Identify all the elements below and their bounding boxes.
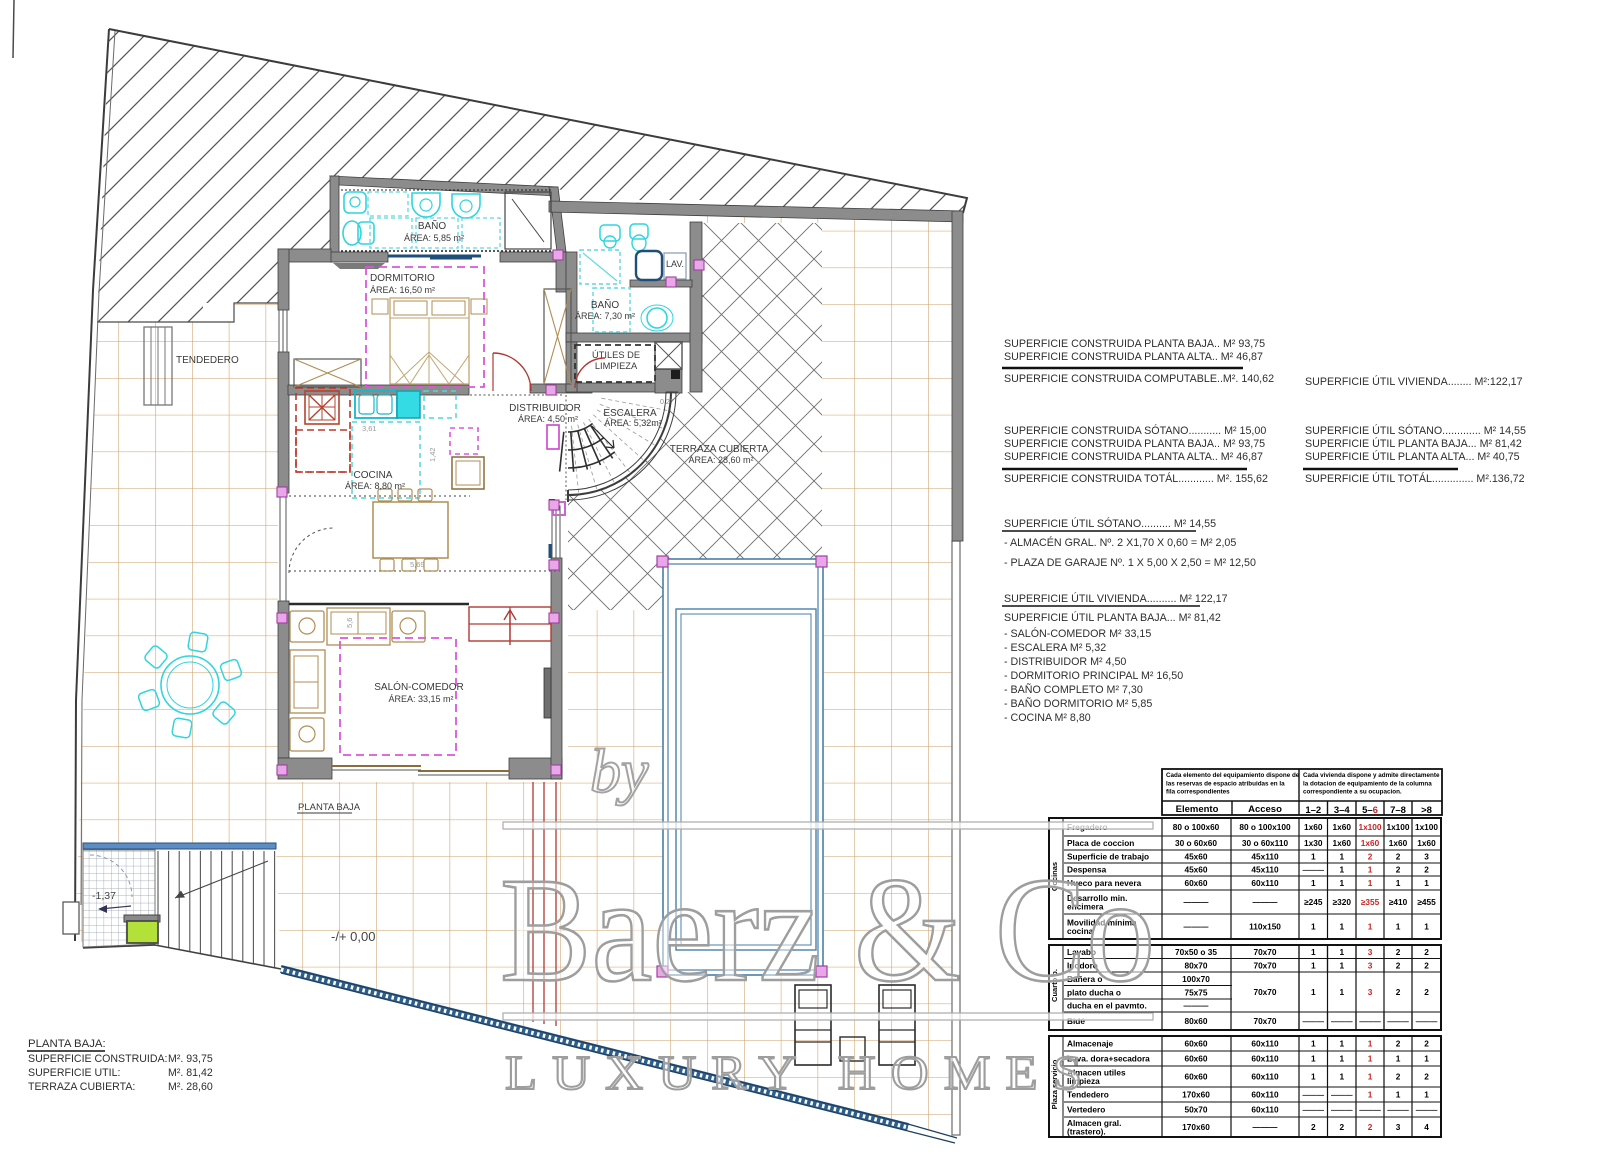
svg-text:1x60: 1x60 (1361, 838, 1380, 848)
svg-text:80x60: 80x60 (1184, 1016, 1207, 1026)
svg-text:by: by (590, 738, 649, 806)
svg-text:70x50 o 35: 70x50 o 35 (1175, 947, 1217, 957)
svg-text:ÁREA: 16,50 m²: ÁREA: 16,50 m² (370, 285, 435, 295)
svg-text:1: 1 (1368, 878, 1373, 888)
svg-text:- BAÑO DORMITORIO M² 5,85: - BAÑO DORMITORIO M² 5,85 (1004, 697, 1152, 710)
svg-text:1: 1 (1339, 1054, 1344, 1064)
svg-text:30 o 60x110: 30 o 60x110 (1242, 838, 1289, 848)
svg-text:3: 3 (1424, 852, 1429, 862)
svg-text:1,42: 1,42 (428, 447, 437, 462)
svg-text:———: ——— (1359, 1017, 1381, 1026)
svg-text:———: ——— (1331, 1106, 1353, 1115)
svg-text:1: 1 (1368, 1039, 1373, 1049)
svg-text:———: ——— (1387, 1106, 1409, 1115)
svg-text:SUPERFICIE ÚTIL PLANTA BAJA...: SUPERFICIE ÚTIL PLANTA BAJA... M² 81,42 (1004, 611, 1221, 624)
svg-text:———: ——— (1359, 1106, 1381, 1115)
svg-text:-/+ 0,00: -/+ 0,00 (331, 929, 375, 944)
svg-text:1x100: 1x100 (1415, 822, 1438, 832)
svg-text:———: ——— (1416, 1017, 1438, 1026)
svg-text:0,27: 0,27 (660, 399, 674, 406)
svg-text:1–2: 1–2 (1305, 805, 1321, 816)
svg-text:SUPERFICIE CONSTRUIDA:: SUPERFICIE CONSTRUIDA: (28, 1053, 168, 1065)
svg-text:60x60: 60x60 (1184, 878, 1207, 888)
svg-text:———: ——— (1184, 1001, 1210, 1011)
svg-text:2: 2 (1396, 960, 1401, 970)
svg-text:1x60: 1x60 (1389, 838, 1408, 848)
svg-text:- SALÓN-COMEDOR M² 33,15: - SALÓN-COMEDOR M² 33,15 (1004, 627, 1151, 640)
svg-text:DORMITORIO: DORMITORIO (370, 273, 435, 284)
svg-text:30 o 60x60: 30 o 60x60 (1175, 838, 1217, 848)
svg-text:- ALMACÉN GRAL. Nº. 2 X1,70 X: - ALMACÉN GRAL. Nº. 2 X1,70 X 0,60 = M² … (1004, 536, 1236, 549)
svg-text:ÁREA: 28,60 m²: ÁREA: 28,60 m² (688, 455, 753, 465)
svg-text:SUPERFICIE ÚTIL VIVIENDA......: SUPERFICIE ÚTIL VIVIENDA.......... M² 12… (1004, 592, 1228, 605)
svg-text:≥245: ≥245 (1304, 897, 1323, 907)
svg-text:1: 1 (1311, 960, 1316, 970)
svg-text:5,6: 5,6 (345, 618, 354, 628)
svg-text:LAV.: LAV. (666, 259, 684, 269)
svg-text:ÁREA: 7,30 m²: ÁREA: 7,30 m² (575, 311, 635, 321)
svg-text:2: 2 (1424, 1039, 1429, 1049)
svg-text:1: 1 (1368, 922, 1373, 932)
svg-text:100x70: 100x70 (1182, 974, 1210, 984)
svg-text:3,61: 3,61 (362, 424, 377, 433)
svg-text:SUPERFICIE CONSTRUIDA PLANTA B: SUPERFICIE CONSTRUIDA PLANTA BAJA.. M² 9… (1004, 338, 1265, 350)
svg-text:SUPERFICIE CONSTRUIDA PLANTA B: SUPERFICIE CONSTRUIDA PLANTA BAJA.. M² 9… (1004, 438, 1265, 450)
svg-text:2: 2 (1424, 987, 1429, 997)
svg-text:3: 3 (1368, 960, 1373, 970)
svg-text:1: 1 (1339, 1072, 1344, 1082)
svg-text:LIMPIEZA: LIMPIEZA (595, 361, 638, 371)
svg-text:ÚTILES DE: ÚTILES DE (592, 350, 640, 360)
svg-text:1: 1 (1339, 1039, 1344, 1049)
svg-text:1: 1 (1311, 947, 1316, 957)
svg-text:2: 2 (1368, 852, 1373, 862)
svg-text:SUPERFICIE CONSTRUIDA SÓTANO..: SUPERFICIE CONSTRUIDA SÓTANO........... … (1004, 424, 1266, 437)
svg-text:SUPERFICIE ÚTIL PLANTA BAJA...: SUPERFICIE ÚTIL PLANTA BAJA... M² 81,42 (1305, 437, 1522, 450)
svg-text:M². 28,60: M². 28,60 (168, 1081, 213, 1093)
svg-text:BAÑO: BAÑO (418, 219, 447, 232)
svg-text:1: 1 (1311, 1039, 1316, 1049)
svg-text:60x110: 60x110 (1251, 1090, 1279, 1100)
svg-text:COCINA: COCINA (354, 470, 393, 481)
svg-text:45x60: 45x60 (1184, 852, 1207, 862)
svg-text:2: 2 (1339, 1122, 1344, 1132)
svg-text:1x60: 1x60 (1304, 822, 1323, 832)
svg-text:1: 1 (1424, 1054, 1429, 1064)
svg-text:1: 1 (1396, 1090, 1401, 1100)
svg-text:60x110: 60x110 (1251, 1054, 1279, 1064)
svg-text:- COCINA M² 8,80: - COCINA M² 8,80 (1004, 712, 1091, 724)
svg-text:1: 1 (1424, 1090, 1429, 1100)
svg-text:1: 1 (1311, 1072, 1316, 1082)
svg-text:Cada elemento del equipamiento: Cada elemento del equipamiento dispone d… (1166, 772, 1300, 779)
svg-text:Cada vivienda dispone y admite: Cada vivienda dispone y admite directame… (1303, 772, 1440, 779)
svg-text:80x70: 80x70 (1184, 960, 1207, 970)
svg-text:70x70: 70x70 (1253, 960, 1276, 970)
svg-text:170x60: 170x60 (1182, 1122, 1210, 1132)
svg-text:- BAÑO COMPLETO M² 7,30: - BAÑO COMPLETO M² 7,30 (1004, 683, 1143, 696)
svg-text:SUPERFICIE ÚTIL SÓTANO........: SUPERFICIE ÚTIL SÓTANO.......... M² 14,5… (1004, 517, 1216, 530)
svg-text:1x100: 1x100 (1386, 822, 1409, 832)
svg-text:45x110: 45x110 (1251, 865, 1279, 875)
svg-text:1: 1 (1339, 878, 1344, 888)
svg-text:———: ——— (1302, 1106, 1324, 1115)
svg-text:SUPERFICIE CONSTRUIDA PLANTA A: SUPERFICIE CONSTRUIDA PLANTA ALTA.. M² 4… (1004, 351, 1263, 363)
svg-text:1: 1 (1311, 987, 1316, 997)
svg-text:TENDEDERO: TENDEDERO (176, 355, 239, 366)
svg-text:1: 1 (1339, 987, 1344, 997)
svg-text:———: ——— (1253, 1122, 1279, 1132)
svg-text:SUPERFICIE CONSTRUIDA TOTÁL...: SUPERFICIE CONSTRUIDA TOTÁL............ … (1004, 472, 1268, 485)
svg-text:70x70: 70x70 (1253, 947, 1276, 957)
svg-text:2: 2 (1424, 947, 1429, 957)
svg-text:1: 1 (1339, 865, 1344, 875)
svg-text:SUPERFICIE ÚTIL TOTÁL.........: SUPERFICIE ÚTIL TOTÁL.............. M².1… (1305, 472, 1525, 485)
svg-text:Acceso: Acceso (1248, 804, 1282, 815)
svg-text:70x70: 70x70 (1253, 987, 1276, 997)
svg-text:ÁREA: 33,15 m²: ÁREA: 33,15 m² (388, 694, 453, 704)
svg-text:SUPERFICIE ÚTIL PLANTA ALTA...: SUPERFICIE ÚTIL PLANTA ALTA... M² 40,75 (1305, 450, 1520, 463)
svg-text:1x100: 1x100 (1358, 822, 1381, 832)
svg-text:———: ——— (1302, 1017, 1324, 1026)
svg-text:60x110: 60x110 (1251, 1039, 1279, 1049)
svg-text:7–8: 7–8 (1390, 805, 1406, 816)
svg-text:1: 1 (1368, 865, 1373, 875)
svg-text:1: 1 (1339, 922, 1344, 932)
svg-text:≥320: ≥320 (1333, 897, 1352, 907)
svg-text:2: 2 (1396, 947, 1401, 957)
svg-text:ÁREA: 4,50 m²: ÁREA: 4,50 m² (518, 414, 578, 424)
svg-text:1: 1 (1311, 1054, 1316, 1064)
svg-text:1: 1 (1311, 852, 1316, 862)
svg-text:1: 1 (1424, 922, 1429, 932)
svg-text:3: 3 (1368, 987, 1373, 997)
svg-text:1: 1 (1396, 878, 1401, 888)
svg-text:SUPERFICIE CONSTRUIDA COMPUTAB: SUPERFICIE CONSTRUIDA COMPUTABLE..M². 14… (1004, 373, 1274, 385)
svg-text:1: 1 (1311, 922, 1316, 932)
svg-text:PLANTA BAJA: PLANTA BAJA (298, 802, 361, 813)
svg-text:2: 2 (1396, 987, 1401, 997)
svg-text:1: 1 (1396, 922, 1401, 932)
svg-text:———: ——— (1331, 1091, 1353, 1100)
svg-text:TERRAZA CUBIERTA:: TERRAZA CUBIERTA: (28, 1081, 135, 1093)
svg-text:- DISTRIBUIDOR M² 4,50: - DISTRIBUIDOR M² 4,50 (1004, 656, 1126, 668)
svg-text:1: 1 (1368, 1072, 1373, 1082)
svg-text:1x60: 1x60 (1333, 838, 1352, 848)
svg-text:Elemento: Elemento (1176, 804, 1219, 815)
svg-text:SUPERFICIE ÚTIL SÓTANO........: SUPERFICIE ÚTIL SÓTANO............. M² 1… (1305, 424, 1526, 437)
svg-text:———: ——— (1331, 1017, 1353, 1026)
svg-text:la dotacion de equipamiento de: la dotacion de equipamiento de la column… (1303, 780, 1432, 787)
svg-text:M². 81,42: M². 81,42 (168, 1067, 213, 1079)
svg-text:2: 2 (1396, 1039, 1401, 1049)
svg-text:(trastero).: (trastero). (1067, 1127, 1106, 1137)
svg-text:60x110: 60x110 (1251, 1105, 1279, 1115)
svg-text:Baerz & Co: Baerz & Co (500, 847, 1155, 1013)
svg-text:5–6: 5–6 (1362, 805, 1378, 816)
svg-text:1x60: 1x60 (1333, 822, 1352, 832)
svg-text:60x110: 60x110 (1251, 1072, 1279, 1082)
svg-text:2: 2 (1424, 865, 1429, 875)
svg-text:45x110: 45x110 (1251, 852, 1279, 862)
svg-text:TERRAZA CUBIERTA: TERRAZA CUBIERTA (670, 444, 769, 455)
svg-text:2: 2 (1368, 1122, 1373, 1132)
svg-text:80 o 100x100: 80 o 100x100 (1239, 822, 1291, 832)
svg-text:———: ——— (1416, 1106, 1438, 1115)
svg-text:2: 2 (1396, 852, 1401, 862)
svg-text:70x70: 70x70 (1253, 1016, 1276, 1026)
svg-text:>8: >8 (1421, 805, 1432, 816)
svg-text:2: 2 (1424, 960, 1429, 970)
svg-text:———: ——— (1184, 897, 1210, 907)
svg-text:45x60: 45x60 (1184, 865, 1207, 875)
svg-text:BAÑO: BAÑO (591, 298, 620, 311)
svg-text:ÁREA: 8,80 m²: ÁREA: 8,80 m² (345, 481, 405, 491)
svg-text:SUPERFICIE UTIL:: SUPERFICIE UTIL: (28, 1067, 120, 1079)
svg-text:LUXURY HOMES: LUXURY HOMES (505, 1045, 1097, 1100)
svg-text:≥455: ≥455 (1417, 897, 1436, 907)
svg-text:≥355: ≥355 (1361, 897, 1380, 907)
svg-text:60x60: 60x60 (1184, 1054, 1207, 1064)
svg-text:SUPERFICIE CONSTRUIDA PLANTA A: SUPERFICIE CONSTRUIDA PLANTA ALTA.. M² 4… (1004, 451, 1263, 463)
svg-text:1x30: 1x30 (1304, 838, 1323, 848)
svg-text:2: 2 (1311, 1122, 1316, 1132)
svg-text:SUPERFICIE ÚTIL VIVIENDA......: SUPERFICIE ÚTIL VIVIENDA........ M²:122,… (1305, 375, 1523, 388)
svg-text:1: 1 (1368, 1054, 1373, 1064)
svg-text:4: 4 (1424, 1122, 1429, 1132)
svg-text:60x60: 60x60 (1184, 1039, 1207, 1049)
svg-text:———: ——— (1302, 866, 1324, 875)
svg-text:DISTRIBUIDOR: DISTRIBUIDOR (509, 403, 581, 414)
svg-text:———: ——— (1184, 922, 1210, 932)
svg-text:170x60: 170x60 (1182, 1090, 1210, 1100)
svg-text:3: 3 (1396, 1122, 1401, 1132)
svg-text:———: ——— (1387, 1017, 1409, 1026)
svg-text:———: ——— (1253, 897, 1279, 907)
svg-text:1: 1 (1339, 852, 1344, 862)
svg-text:Vertedero: Vertedero (1067, 1105, 1105, 1115)
svg-text:correspondiente a su ocupac: correspondiente a su ocupacion. (1303, 789, 1402, 796)
svg-text:80 o 100x60: 80 o 100x60 (1173, 822, 1220, 832)
svg-text:ÁREA: 5,85 m²: ÁREA: 5,85 m² (404, 233, 464, 243)
svg-text:fila correspondientes: fila correspondientes (1166, 789, 1230, 796)
svg-text:3–4: 3–4 (1334, 805, 1351, 816)
svg-text:M². 93,75: M². 93,75 (168, 1053, 213, 1065)
svg-text:50x70: 50x70 (1184, 1105, 1207, 1115)
svg-text:- PLAZA DE GARAJE Nº. 1 X 5,0: - PLAZA DE GARAJE Nº. 1 X 5,00 X 2,50 = … (1004, 557, 1256, 569)
svg-text:las reservas de espacio atribu: las reservas de espacio atribuidas en la (1166, 780, 1285, 787)
svg-text:1x60: 1x60 (1417, 838, 1436, 848)
svg-text:≥410: ≥410 (1389, 897, 1408, 907)
svg-text:1: 1 (1339, 960, 1344, 970)
svg-text:75x75: 75x75 (1184, 987, 1207, 997)
svg-text:PLANTA BAJA:: PLANTA BAJA: (28, 1038, 106, 1050)
svg-text:110x150: 110x150 (1249, 922, 1281, 932)
svg-text:2: 2 (1396, 865, 1401, 875)
svg-text:ÁREA: 5,32m²: ÁREA: 5,32m² (604, 418, 662, 428)
svg-text:1: 1 (1424, 878, 1429, 888)
svg-text:-1,37: -1,37 (92, 890, 116, 902)
svg-text:3: 3 (1368, 947, 1373, 957)
svg-text:1: 1 (1311, 878, 1316, 888)
svg-text:1: 1 (1368, 1090, 1373, 1100)
svg-text:- ESCALERA M² 5,32: - ESCALERA M² 5,32 (1004, 642, 1106, 654)
svg-text:2: 2 (1424, 1072, 1429, 1082)
svg-text:- DORMITORIO PRINCIPAL M² 16,: - DORMITORIO PRINCIPAL M² 16,50 (1004, 670, 1183, 682)
svg-text:5,69: 5,69 (410, 560, 425, 569)
svg-text:1: 1 (1339, 947, 1344, 957)
svg-text:———: ——— (1302, 1091, 1324, 1100)
svg-text:60x60: 60x60 (1184, 1072, 1207, 1082)
svg-text:1: 1 (1396, 1054, 1401, 1064)
svg-text:2: 2 (1396, 1072, 1401, 1082)
svg-text:SALÓN-COMEDOR: SALÓN-COMEDOR (374, 680, 463, 693)
svg-text:60x110: 60x110 (1251, 878, 1279, 888)
